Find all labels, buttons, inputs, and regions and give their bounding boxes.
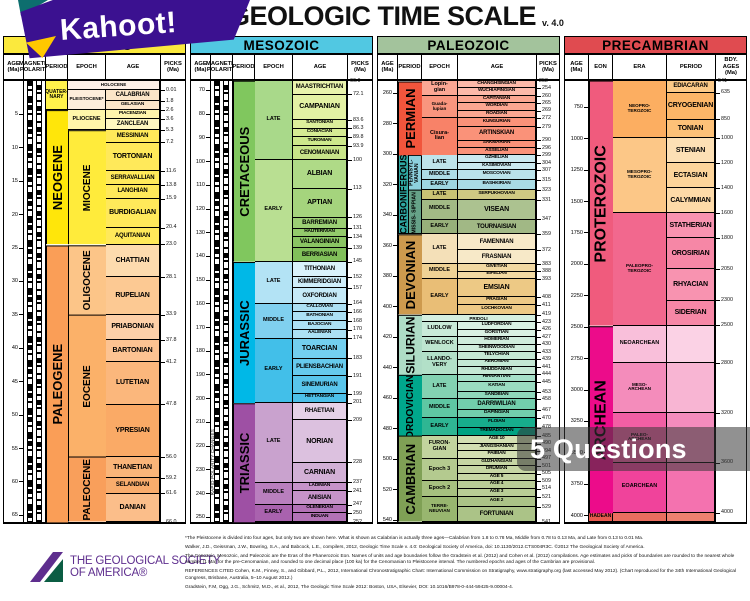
age-label-cenomanian: CENOMANIAN (293, 146, 347, 160)
axis-tick: 130 (196, 230, 210, 236)
pick-label: 199 (348, 392, 369, 397)
age-label-dapingian: DAPINGIAN (458, 410, 536, 417)
age-label-age-2: AGE 2 (458, 497, 536, 507)
pick-label: 134 (348, 235, 369, 240)
age-row-calabrian: CALABRIAN1.8 (106, 90, 160, 102)
pick-label: 247 (348, 502, 369, 507)
age-row-wuchiapingian: WUCHIAPINGIAN260 (458, 88, 536, 95)
age-row-homerian: HOMERIAN430 (458, 337, 536, 344)
pick-label: 93.9 (348, 144, 369, 149)
epoch-row-mesopro-terozoic: MESOPRO- TEROZOICSTENIAN1200ECTASIAN1400… (613, 138, 715, 213)
pick-label: 61.6 (161, 491, 182, 496)
footnote-gradstein: Gradstein, F.M, Ogg, J.G., Schmitz, M.D.… (185, 585, 745, 591)
period-label-jurassic: JURASSIC (233, 262, 255, 403)
epoch-label-late: LATE (255, 81, 293, 160)
axis-tick: 500 (383, 456, 397, 462)
age-stack: VISEAN347 (458, 200, 536, 220)
age-stack: GIVETIAN388EIFELIAN393 (458, 264, 536, 279)
pick-label: 2300 (716, 298, 743, 303)
age-label-age-5: AGE 5 (458, 474, 536, 481)
age-row-barremian: BARREMIAN131 (293, 218, 347, 229)
version-label: v. 4.0 (542, 18, 564, 28)
age-row-turonian: TURONIAN93.9 (293, 137, 347, 146)
axis-tick: 300 (383, 151, 397, 157)
footnotes: *The Pleistocene is divided into four ag… (185, 536, 745, 594)
age-row-asselian: ASSELIAN299 (458, 148, 536, 155)
age-stack: MOSCOVIAN315 (458, 170, 536, 180)
question-count-badge: 5 Questions (517, 427, 750, 471)
age-row-rhaetian: RHAETIAN209 (293, 403, 347, 421)
age-stack: FAMENNIAN372FRASNIAN383 (458, 234, 536, 264)
axis-tick: 440 (383, 365, 397, 371)
age-label-visean: VISEAN (458, 200, 536, 220)
pick-label: 86.3 (348, 126, 369, 131)
age-row-age-2: AGE 2529 (458, 497, 536, 507)
axis-tick: 320 (383, 182, 397, 188)
age-label-ludfordian: LUDFORDIAN (458, 322, 536, 329)
age-row-stenian: STENIAN1200 (667, 138, 715, 163)
axis-tick: 2250 (571, 293, 588, 299)
epoch-row-early: EARLYTOURNAISIAN359 (422, 220, 536, 235)
pick-label: 441 (537, 365, 556, 370)
pick-label: 228 (348, 460, 369, 465)
epoch-row-lopin-gian: Lopin- gianCHANGHSINGIAN254WUCHIAPINGIAN… (422, 81, 536, 96)
age-row-emsian: EMSIAN408 (458, 279, 536, 297)
epoch-label-late: LATE (422, 375, 458, 400)
top-pick-label: 541 (718, 79, 745, 84)
axis-tick: 1500 (571, 199, 588, 205)
age-label-sandbian: SANDBIAN (458, 392, 536, 399)
age-row-calymmian: CALYMMIAN1600 (667, 188, 715, 213)
age-label-tonian: TONIAN (667, 120, 715, 139)
age-label-frasnian: FRASNIAN (458, 250, 536, 264)
epoch-label-middle: MIDDLE (422, 264, 458, 279)
axis-tick: 15 (12, 178, 23, 184)
age-label-ediacaran: EDIACARAN (667, 81, 715, 93)
age-row-olenekian: OLENEKIAN250 (293, 505, 347, 514)
age-label-age-4: AGE 4 (458, 481, 536, 488)
age-row-givetian: GIVETIAN388 (458, 264, 536, 271)
kahoot-logo: Kahoot! (18, 0, 250, 60)
pick-label: 2050 (716, 267, 743, 272)
epoch-row-middle: MIDDLEMOSCOVIAN315 (422, 170, 536, 180)
age-row-rhyacian: RHYACIAN2300 (667, 269, 715, 300)
epoch-row-late: LATEGZHELIAN304KASIMOVIAN307 (422, 155, 536, 170)
epoch-label-neopro-terozoic: NEOPRO- TEROZOIC (613, 81, 667, 138)
age-label-hirnantian: HIRNANTIAN (458, 375, 536, 382)
age-row-aeronian: AERONIAN441 (458, 360, 536, 367)
pick-label: 315 (537, 178, 556, 183)
epoch-stack: LATEFAMENNIAN372FRASNIAN383MIDDLEGIVETIA… (422, 234, 536, 314)
axis-tick: 55 (12, 446, 23, 452)
age-row-campanian: CAMPANIAN83.6 (293, 95, 347, 121)
epoch-row-early: EARLYBASHKIRIAN323 (422, 180, 536, 190)
epoch-row-guada-lupian: Guada- lupianCAPITANIAN265WORDIAN269ROAD… (422, 96, 536, 118)
age-label-carnian: CARNIAN (293, 463, 347, 483)
pick-label: 4000 (716, 510, 743, 515)
age-stack: STENIAN1200ECTASIAN1400CALYMMIAN1600 (667, 138, 715, 213)
axis-tick: 1250 (571, 167, 588, 173)
age-row-langhian: LANGHIAN15.9 (106, 185, 160, 199)
age-stack: GZHELIAN304KASIMOVIAN307 (458, 155, 536, 170)
age-label-cryogenian: CRYOGENIAN (667, 93, 715, 120)
pick-label: 433 (537, 350, 556, 355)
age-row-aptian: APTIAN126 (293, 189, 347, 218)
period-label-triassic: TRIASSIC (233, 403, 255, 522)
epoch-stack: 423PRIDOLILUDLOWLUDFORDIAN426GORSTIAN427… (422, 315, 536, 375)
axis-tick: 1750 (571, 230, 588, 236)
age-row-ediacaran: EDIACARAN635 (667, 81, 715, 93)
top-pick-label: 66.0 (350, 79, 371, 84)
subheader-age: AGE (293, 54, 348, 80)
axis-tick: 170 (196, 325, 210, 331)
axis-tick: 2500 (571, 324, 588, 330)
age-row-fortunian: FORTUNIAN541 (458, 507, 536, 522)
pick-label: 1000 (716, 136, 743, 141)
period-row-jurassic: JURASSICLATETITHONIAN152KIMMERIDGIAN157O… (233, 262, 347, 403)
age-row-chattian: CHATTIAN28.1 (106, 245, 160, 278)
pick-label: 250 (348, 511, 369, 516)
subheader-era: ERA (613, 54, 667, 80)
pick-label: 521 (537, 495, 556, 500)
epoch-label-miocene: MIOCENE (68, 130, 106, 244)
axis-tick: 240 (196, 491, 210, 497)
pick-label: 3200 (716, 411, 743, 416)
period-outer-label: CARBONIFEROUS (398, 155, 408, 233)
axis-tick: 90 (199, 135, 210, 141)
pick-label: 0.01 (161, 88, 182, 93)
epoch-row-pridoli: 423PRIDOLI (422, 315, 536, 322)
axis-tick: 180 (196, 348, 210, 354)
age-row-artinskian: ARTINSKIAN290 (458, 127, 536, 141)
age-row-selandian: SELANDIAN61.6 (106, 478, 160, 493)
epoch-label-early: EARLY (422, 180, 458, 190)
age-row-danian: DANIAN66.0 (106, 494, 160, 522)
age-row-lutetian: LUTETIAN47.8 (106, 362, 160, 405)
age-row-gorstian: GORSTIAN427 (458, 330, 536, 337)
age-stack: SERPUKHOVIAN331 (458, 190, 536, 200)
pick-label: 505 (537, 471, 556, 476)
age-row-maastrichtian: MAASTRICHTIAN72.1 (293, 81, 347, 95)
age-row-serpukhovian: SERPUKHOVIAN331 (458, 190, 536, 200)
age-stack: MAASTRICHTIAN72.1CAMPANIAN83.6SANTONIAN8… (293, 81, 347, 160)
axis-tick: 3750 (571, 481, 588, 487)
pick-label: 83.6 (348, 118, 369, 123)
age-row-oxfordian: OXFORDIAN164 (293, 288, 347, 304)
age-stack: STATHERIAN1800OROSIRIAN2050RHYACIAN2300S… (667, 213, 715, 325)
period-label-archean: ARCHEAN (589, 326, 613, 513)
epoch-label-unnamed (613, 513, 667, 522)
subheader-age: AGE (458, 54, 537, 80)
age-row-toarcian: TOARCIAN183 (293, 339, 347, 359)
age-label-sinemurian: SINEMURIAN (293, 376, 347, 394)
question-count-label: 5 Questions (530, 434, 687, 465)
pick-label: 1.8 (161, 99, 182, 104)
epoch-row-holocene: 0.01HOLOCENE (68, 81, 160, 90)
pick-label: 470 (537, 416, 556, 421)
age-label-emsian: EMSIAN (458, 279, 536, 297)
age-stack: 3200 (667, 363, 715, 413)
period-label-silurian: SILURIAN (398, 315, 422, 375)
age-label-barremian: BARREMIAN (293, 218, 347, 229)
axis-tick: 230 (196, 467, 210, 473)
axis-tick: 210 (196, 419, 210, 425)
pick-label: 11.6 (161, 169, 182, 174)
age-label-eifelian: EIFELIAN (458, 272, 536, 279)
age-label-aalenian: AALENIAN (293, 330, 347, 339)
epoch-stack: NEOPRO- TEROZOICEDIACARAN635CRYOGENIAN85… (613, 81, 715, 326)
age-row-burdigalian: BURDIGALIAN20.4 (106, 199, 160, 228)
pick-label: 191 (348, 374, 369, 379)
age-row-eifelian: EIFELIAN393 (458, 272, 536, 279)
age-label-siderian: SIDERIAN (667, 301, 715, 326)
age-label-wuchiapingian: WUCHIAPINGIAN (458, 88, 536, 95)
age-label-unnamed (667, 513, 715, 522)
pick-label: 388 (537, 269, 556, 274)
age-stack: CALLOVIAN166BATHONIAN168BAJOCIAN170AALEN… (293, 304, 347, 339)
age-row-rupelian: RUPELIAN33.9 (106, 277, 160, 314)
polarity-bar (223, 81, 229, 522)
pick-label: 139 (348, 246, 369, 251)
age-label-bajocian: BAJOCIAN (293, 321, 347, 330)
age-row-bajocian: BAJOCIAN170 (293, 321, 347, 330)
period-label-permian: PERMIAN (398, 81, 422, 155)
age-stack: DARRIWILIAN467DAPINGIAN470 (458, 399, 536, 418)
age-row-unnamed (667, 513, 715, 522)
kahoot-cover-page: GEOLOGIC TIME SCALE v. 4.0 Kahoot! CENOZ… (0, 0, 750, 601)
age-label-burdigalian: BURDIGALIAN (106, 199, 160, 228)
pick-label: 41.2 (161, 360, 182, 365)
age-label-thanetian: THANETIAN (106, 457, 160, 478)
age-label-ectasian: ECTASIAN (667, 163, 715, 188)
age-row-carnian: CARNIAN237 (293, 463, 347, 483)
period-row-devonian: DEVONIANLATEFAMENNIAN372FRASNIAN383MIDDL… (398, 234, 536, 314)
epoch-row-pliocene: PLIOCENEPIACENZIAN3.6ZANCLEAN5.3 (68, 110, 160, 130)
axis-tick: 2750 (571, 356, 588, 362)
age-row-unnamed: 3200 (667, 363, 715, 413)
age-label-stenian: STENIAN (667, 138, 715, 163)
epoch-row-ludlow: LUDLOWLUDFORDIAN426GORSTIAN427 (422, 322, 536, 337)
age-label-givetian: GIVETIAN (458, 264, 536, 271)
age-row-rhuddanian: RHUDDANIAN444 (458, 367, 536, 374)
subheader-bdy: BDY. AGES (Ma) (716, 54, 746, 80)
pick-label: 20.4 (161, 225, 182, 230)
age-row-thanetian: THANETIAN59.2 (106, 457, 160, 478)
age-label-coniacian: CONIACIAN (293, 129, 347, 138)
age-label-aquitanian: AQUITANIAN (106, 228, 160, 245)
age-row-changhsingian: CHANGHSINGIAN254 (458, 81, 536, 88)
footnote-citation: Walker, J.D., Geissman, J.W., Bowring, S… (185, 545, 745, 551)
pick-label: 152 (348, 275, 369, 280)
epoch-row-unnamed (613, 513, 715, 522)
age-axis: 7080901001101201301401501601701801902002… (191, 81, 211, 522)
age-label-santonian: SANTONIAN (293, 120, 347, 129)
epoch-label-middle: MIDDLE (422, 200, 458, 220)
epoch-label-early: EARLY (255, 160, 293, 262)
footnote-pleistocene: *The Pleistocene is divided into four ag… (185, 536, 745, 542)
age-stack: PRIABONIAN37.8BARTONIAN41.2LUTETIAN47.8Y… (106, 315, 160, 458)
pick-label: 126 (348, 215, 369, 220)
subheader-epoch: EPOCH (255, 54, 293, 80)
age-stack: CHANGHSINGIAN254WUCHIAPINGIAN260 (458, 81, 536, 96)
age-stack: OLENEKIAN250INDUAN252 (293, 505, 347, 522)
age-label-hettangian: HETTANGIAN (293, 394, 347, 403)
pick-label: 307 (537, 168, 556, 173)
age-row-messinian: MESSINIAN7.2 (106, 130, 160, 142)
epoch-label-late: LATE (255, 262, 293, 304)
epoch-label-paleocene: PALEOCENE (68, 457, 106, 522)
age-label-serpukhovian: SERPUKHOVIAN (458, 190, 536, 200)
subheader-period: PERIOD (667, 54, 716, 80)
age-row-callovian: CALLOVIAN166 (293, 304, 347, 313)
age-label-capitanian: CAPITANIAN (458, 96, 536, 103)
footnote-methodology: The Cenozoic, Mesozoic, and Paleozoic ar… (185, 554, 745, 567)
pick-label: 408 (537, 295, 556, 300)
column-body-cenozoic: 5101520253035404550556065QUATER- NARY0.0… (3, 80, 186, 524)
age-label-unnamed (667, 363, 715, 413)
age-label-gorstian: GORSTIAN (458, 330, 536, 337)
epoch-row-early: EARLYOLENEKIAN250INDUAN252 (255, 505, 347, 522)
epoch-stack: LATETITHONIAN152KIMMERIDGIAN157OXFORDIAN… (255, 262, 347, 403)
epoch-label-mesopro-terozoic: MESOPRO- TEROZOIC (613, 138, 667, 213)
age-stack: CAPITANIAN265WORDIAN269ROADIAN272 (458, 96, 536, 118)
period-label-paleogene: PALEOGENE (46, 245, 68, 522)
epoch-row-late: LATEFAMENNIAN372FRASNIAN383 (422, 234, 536, 264)
pick-label: 2500 (716, 323, 743, 328)
axis-tick: 65 (12, 512, 23, 518)
age-row-aquitanian: AQUITANIAN23.0 (106, 228, 160, 245)
pick-label: 113 (348, 186, 369, 191)
age-label-rhyacian: RHYACIAN (667, 269, 715, 300)
epoch-row-early: EARLYEMSIAN408PRAGIAN411LOCHKOVIAN419 (422, 279, 536, 315)
epoch-row-epoch-2: Epoch 2AGE 4514AGE 3521 (422, 481, 536, 497)
age-stack: TITHONIAN152KIMMERIDGIAN157OXFORDIAN164 (293, 262, 347, 304)
age-row-gelasian: GELASIAN2.6 (106, 101, 160, 110)
pick-label: 5.3 (161, 128, 182, 133)
age-row-capitanian: CAPITANIAN265 (458, 96, 536, 103)
footnote-references: REFERENCES CITED Cohen, K.M., Finney, S.… (185, 569, 745, 582)
axis-tick: 80 (199, 111, 210, 117)
epoch-row-meso-archean: MESO- ARCHEAN3200 (613, 363, 715, 413)
age-row-tithonian: TITHONIAN152 (293, 262, 347, 278)
pick-label: 2800 (716, 361, 743, 366)
age-label-orosirian: OROSIRIAN (667, 238, 715, 269)
epoch-label-middle: MIDDLE (255, 483, 293, 505)
age-row-sandbian: SANDBIAN458 (458, 392, 536, 399)
period-row-triassic: TRIASSICLATERHAETIAN209NORIAN228CARNIAN2… (233, 403, 347, 522)
age-row-darriwilian: DARRIWILIAN467 (458, 399, 536, 410)
age-row-pragian: PRAGIAN411 (458, 297, 536, 304)
pick-label: 72.1 (348, 92, 369, 97)
epoch-stack: 0.01HOLOCENEPLEISTOCENE*CALABRIAN1.8GELA… (68, 81, 160, 110)
pick-label: 166 (348, 310, 369, 315)
age-label-statherian: STATHERIAN (667, 213, 715, 238)
pick-label: 304 (537, 161, 556, 166)
pick-label: 453 (537, 390, 556, 395)
age-label-aptian: APTIAN (293, 189, 347, 218)
axis-tick: 1000 (571, 136, 588, 142)
epoch-row-late: LATETITHONIAN152KIMMERIDGIAN157OXFORDIAN… (255, 262, 347, 304)
period-row-neogene: NEOGENEPLIOCENEPIACENZIAN3.6ZANCLEAN5.3M… (46, 110, 160, 244)
pick-label: 7.2 (161, 140, 182, 145)
epoch-row-late: LATEMAASTRICHTIAN72.1CAMPANIAN83.6SANTON… (255, 81, 347, 160)
age-row-visean: VISEAN347 (458, 200, 536, 220)
age-label-asselian: ASSELIAN (458, 148, 536, 155)
epoch-label-early: EARLY (255, 505, 293, 522)
axis-tick: 4000 (571, 513, 588, 519)
age-label-langhian: LANGHIAN (106, 185, 160, 199)
age-row-kungurian: KUNGURIAN279 (458, 118, 536, 127)
age-row-sinemurian: SINEMURIAN199 (293, 376, 347, 394)
pick-label: 529 (537, 505, 556, 510)
pick-label: 3.6 (161, 117, 182, 122)
epoch-label-pliocene: PLIOCENE (68, 110, 106, 130)
pick-label: 164 (348, 301, 369, 306)
epoch-label-furon-gian: FURON- GIAN (422, 436, 458, 458)
period-row-archean: ARCHEANNEOARCHEAN2800MESO- ARCHEAN3200PA… (589, 326, 715, 513)
epoch-row-middle: MIDDLEGIVETIAN388EIFELIAN393 (422, 264, 536, 279)
pick-label: 89.8 (348, 135, 369, 140)
pick-label: 850 (716, 117, 743, 122)
polarity-bar (27, 81, 33, 522)
age-row-bartonian: BARTONIAN41.2 (106, 340, 160, 362)
epoch-label-early: EARLY (422, 220, 458, 235)
age-stack: PIACENZIAN3.6ZANCLEAN5.3 (106, 110, 160, 130)
age-row-tournaisian: TOURNAISIAN359 (458, 220, 536, 235)
age-label-bartonian: BARTONIAN (106, 340, 160, 362)
pick-label: 131 (348, 226, 369, 231)
subperiod-stack: PENNSYL- VANIANMISSIS- SIPPIAN (408, 155, 421, 234)
period-label-cretaceous: CRETACEOUS (233, 81, 255, 262)
epoch-row-early: EARLYTOARCIAN183PLIENSBACHIAN191SINEMURI… (255, 339, 347, 403)
epoch-label-eocene: EOCENE (68, 315, 106, 458)
axis-tick: 140 (196, 253, 210, 259)
age-label-tournaisian: TOURNAISIAN (458, 220, 536, 235)
age-row-cryogenian: CRYOGENIAN850 (667, 93, 715, 120)
age-stack: LADINIAN241ANISIAN247 (293, 483, 347, 505)
pick-label: 260 (537, 94, 556, 99)
epoch-label-holocene: HOLOCENE (68, 81, 160, 90)
age-row-aalenian: AALENIAN174 (293, 330, 347, 339)
epoch-row-paleopro-terozoic: PALEOPRO- TEROZOICSTATHERIAN1800OROSIRIA… (613, 213, 715, 325)
epoch-row-wenlock: WENLOCKHOMERIAN430SHEINWOODIAN433 (422, 337, 536, 352)
age-row-hirnantian: HIRNANTIAN445 (458, 375, 536, 382)
age-label-age-3: AGE 3 (458, 489, 536, 498)
age-label-lutetian: LUTETIAN (106, 362, 160, 405)
pick-label: 514 (537, 486, 556, 491)
pick-label: 56.0 (161, 455, 182, 460)
age-stack: BASHKIRIAN323 (458, 180, 536, 190)
period-row-ordovician: ORDOVICIANLATEHIRNANTIAN445KATIAN453SAND… (398, 375, 536, 437)
epoch-label-late: LATE (255, 403, 293, 483)
age-label-piacenzian: PIACENZIAN (106, 110, 160, 119)
axis-tick: 50 (12, 412, 23, 418)
pick-label: 411 (537, 303, 556, 308)
age-row-norian: NORIAN228 (293, 420, 347, 462)
axis-tick: 420 (383, 334, 397, 340)
age-row-sheinwoodian: SHEINWOODIAN433 (458, 345, 536, 352)
gsa-logo-icon (30, 552, 64, 582)
column-subheaders: AGE (Ma)EONERAPERIODBDY. AGES (Ma) (564, 54, 747, 80)
pick-label: 100 (348, 158, 369, 163)
page-title: GEOLOGIC TIME SCALE (229, 3, 536, 30)
chart-title-row: GEOLOGIC TIME SCALE v. 4.0 (229, 3, 564, 30)
pick-label: 1800 (716, 236, 743, 241)
age-row-tonian: TONIAN1000 (667, 120, 715, 139)
axis-tick: 480 (383, 426, 397, 432)
age-stack (667, 513, 715, 522)
pick-label: 1600 (716, 211, 743, 216)
